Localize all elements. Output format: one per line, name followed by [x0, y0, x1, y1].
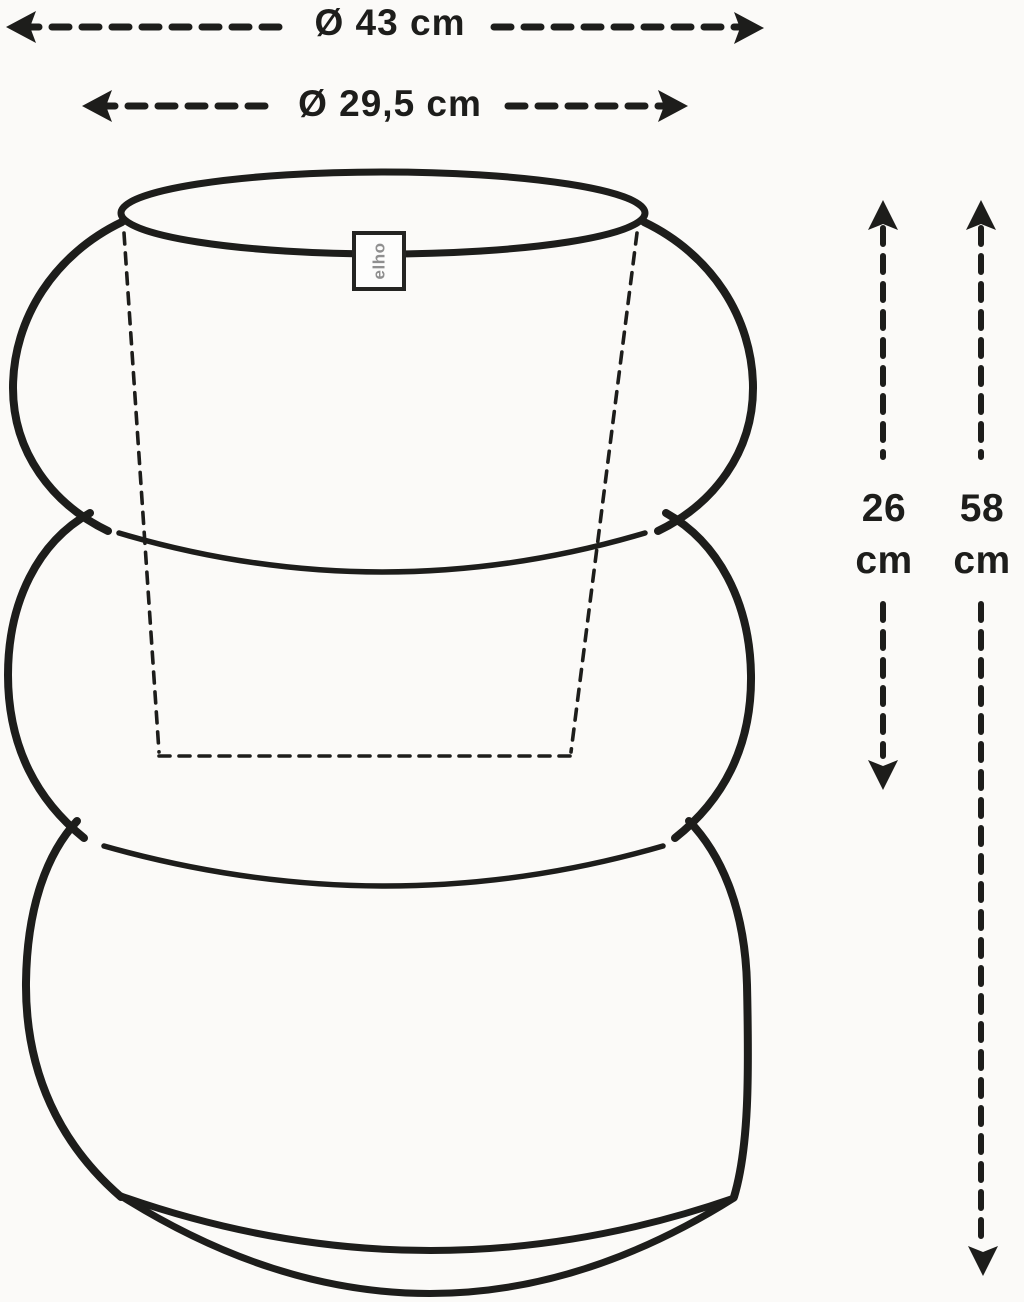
total-height-unit: cm — [943, 541, 1021, 580]
middle-bulb-right-outline — [666, 513, 751, 838]
bottom-bulb-left-outline — [26, 821, 121, 1197]
inner-pot-left-dashed — [124, 233, 159, 752]
brand-logo-text: elho — [369, 243, 389, 280]
total-height-value: 58 — [943, 489, 1021, 528]
inner-height-unit: cm — [845, 541, 923, 580]
bottom-bulb-right-outline — [689, 821, 748, 1197]
planter-line-drawing — [0, 0, 1024, 1302]
brand-tag: elho — [352, 231, 406, 291]
pot-top-bulb — [13, 172, 753, 531]
down-arrowhead-icon — [868, 760, 898, 790]
upper-seam-line — [119, 533, 645, 572]
inner-pot-dashed-outline — [124, 233, 637, 756]
top-bulb-left-outline — [13, 222, 122, 531]
inner-pot-right-dashed — [571, 233, 637, 752]
down-arrowhead-icon — [968, 1246, 998, 1276]
dimension-diagram: Ø 43 cm Ø 29,5 cm 26 cm 58 cm elho — [0, 0, 1024, 1302]
top-bulb-right-outline — [644, 222, 753, 531]
middle-bulb-left-outline — [8, 513, 90, 838]
lower-seam-line — [104, 846, 663, 886]
outer-diameter-label: Ø 43 cm — [250, 2, 530, 44]
foot-lower-arc — [121, 1196, 734, 1294]
inner-diameter-label: Ø 29,5 cm — [240, 83, 540, 125]
inner-height-value: 26 — [845, 489, 923, 528]
total-height-dimension-arrow — [966, 200, 998, 1276]
pot-middle-bulb — [8, 513, 751, 838]
pot-bottom-bulb — [26, 821, 748, 1294]
